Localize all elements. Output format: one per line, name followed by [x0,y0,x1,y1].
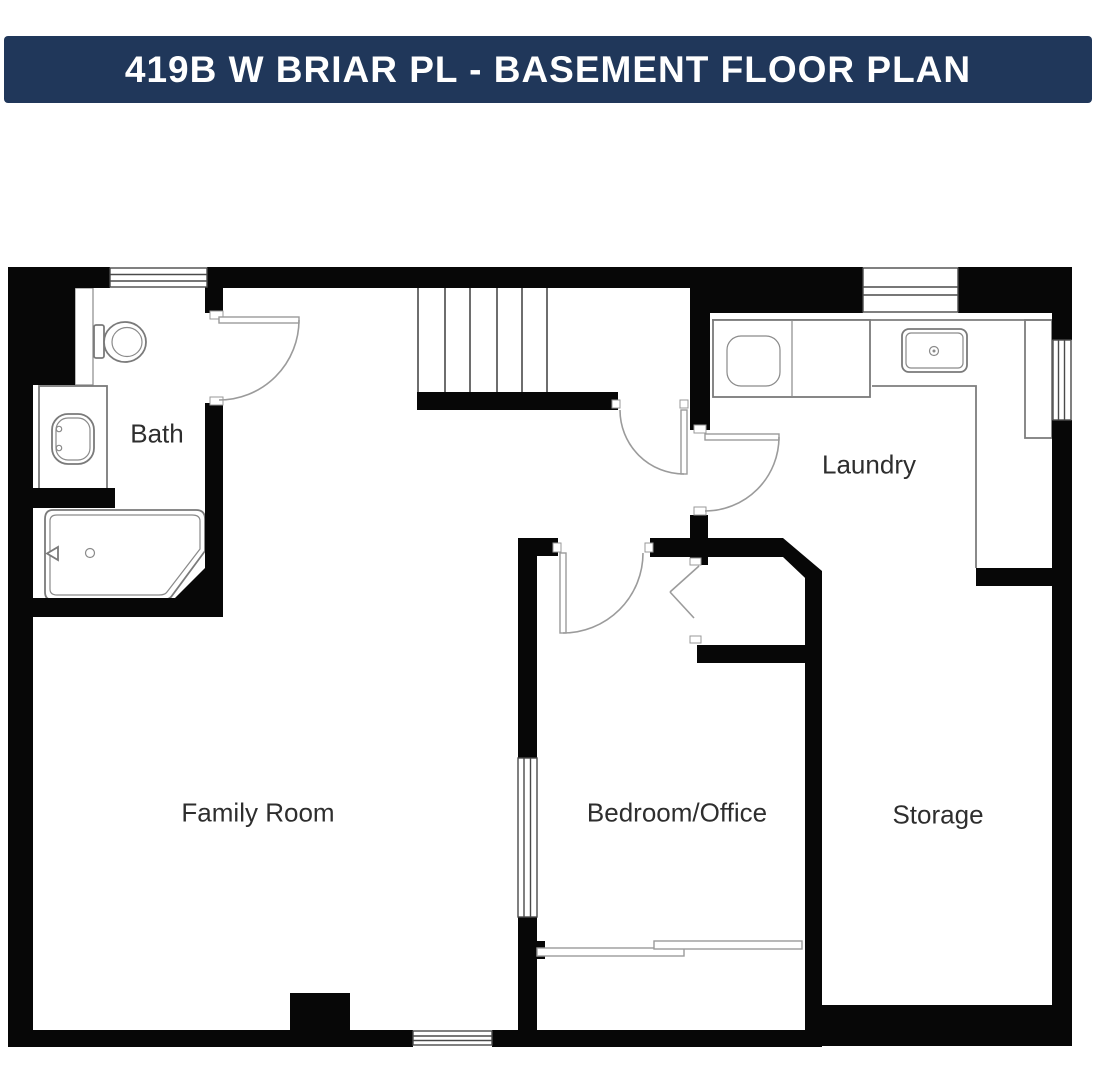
wall-layer [8,267,1072,1047]
bathroom-sink-icon [39,386,107,489]
bifold-closet-doors-icon [670,566,699,618]
room-label-bedroom-office: Bedroom/Office [587,798,767,829]
bathtub-icon [45,510,205,600]
door-stairs [620,410,687,474]
laundry-sink-icon [902,329,967,372]
sliding-door-icon [537,941,802,956]
room-label-bath: Bath [130,419,184,450]
room-label-laundry: Laundry [822,450,916,481]
stairs-icon [418,288,547,392]
toilet-side-shelf [75,288,93,385]
window-bedroom-left [518,758,537,917]
door-laundry [705,434,779,511]
room-label-storage: Storage [892,800,983,831]
room-label-family-room: Family Room [181,798,334,829]
window-bath-top [110,268,207,287]
door-bedroom [560,553,643,633]
floor-plan-page: 419B W BRIAR PL - BASEMENT FLOOR PLAN [0,0,1096,1080]
window-laundry-right [1053,340,1071,420]
floor-plan-drawing [0,0,1096,1080]
toilet-icon [94,322,146,362]
door-bath [219,317,299,400]
window-laundry-top [863,268,958,312]
window-family-bottom [413,1031,492,1045]
washer-dryer-icon [713,320,870,397]
